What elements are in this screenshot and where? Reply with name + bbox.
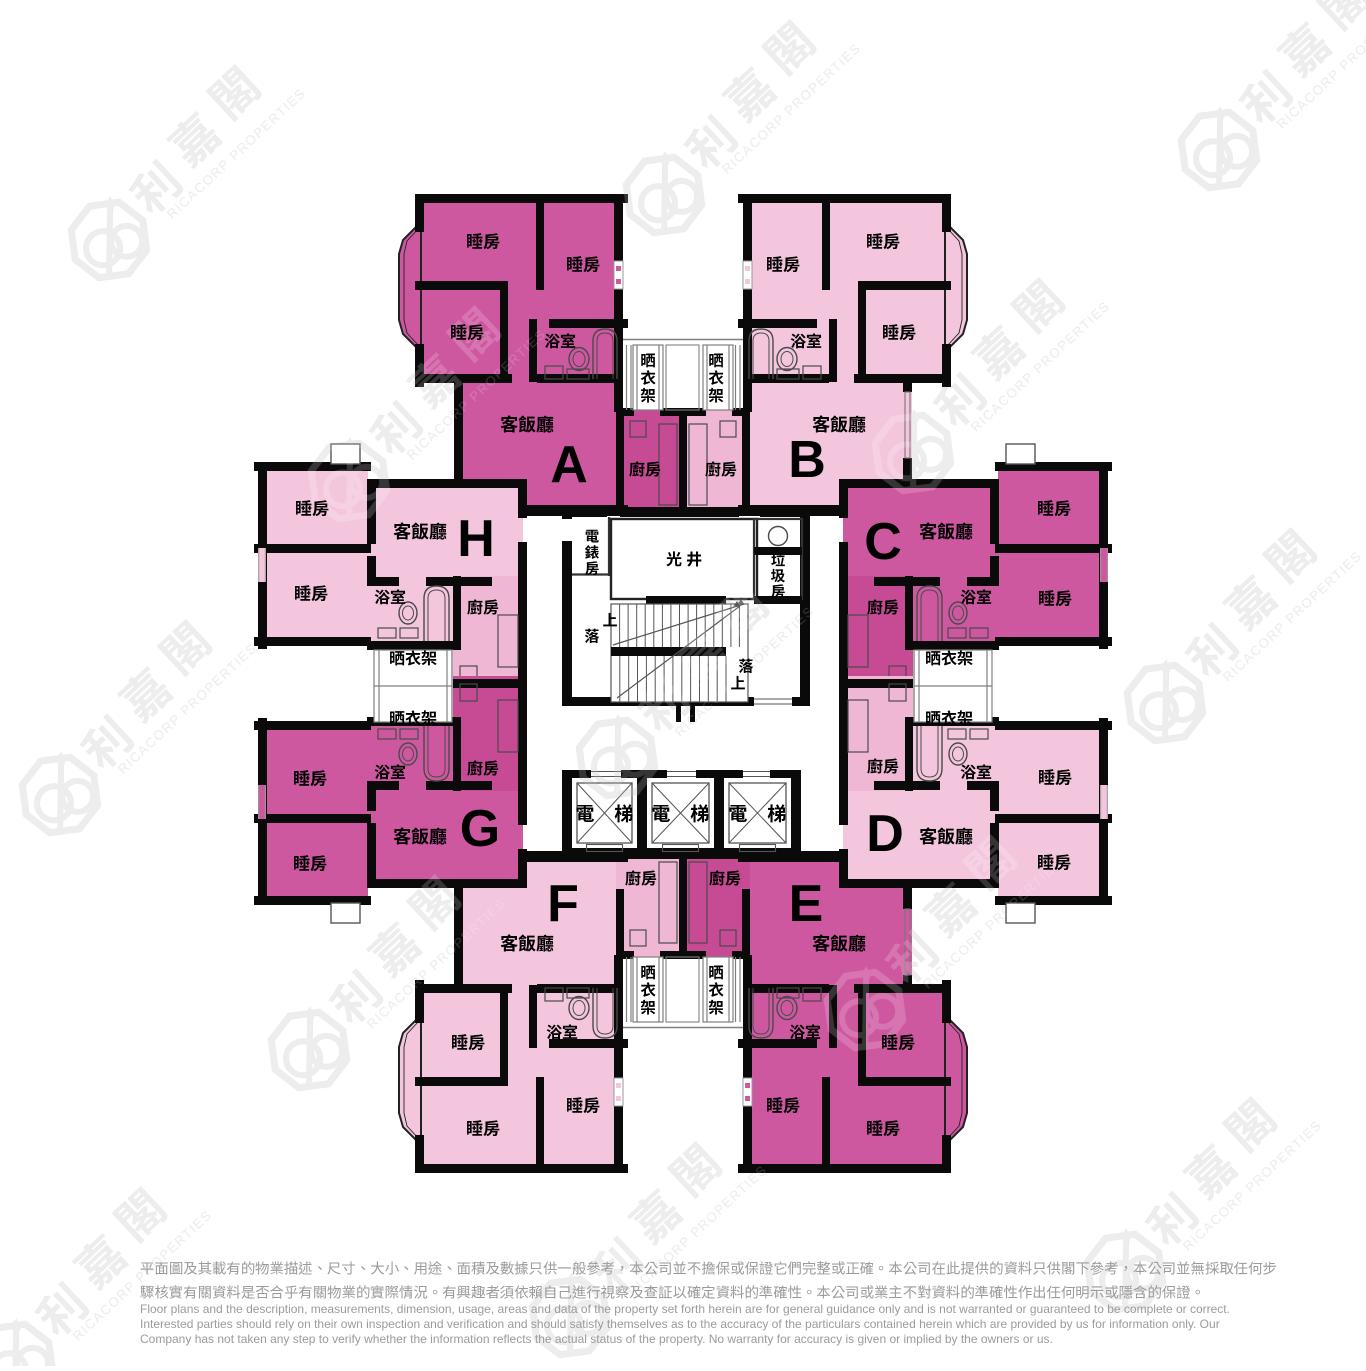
svg-text:晒衣架: 晒衣架 — [925, 705, 973, 729]
svg-text:睡房: 睡房 — [882, 319, 916, 344]
svg-text:梯: 梯 — [767, 800, 786, 827]
svg-text:梯: 梯 — [690, 800, 709, 827]
svg-text:睡房: 睡房 — [1037, 495, 1071, 520]
svg-text:浴室: 浴室 — [546, 1019, 578, 1043]
svg-text:客飯廳: 客飯廳 — [393, 518, 447, 544]
svg-text:睡房: 睡房 — [1037, 849, 1071, 874]
svg-text:浴室: 浴室 — [960, 759, 992, 783]
svg-text:廚房: 廚房 — [467, 594, 499, 618]
svg-text:Floor plans and the descriptio: Floor plans and the description, measure… — [140, 1302, 1230, 1316]
svg-text:廚房: 廚房 — [867, 594, 899, 618]
svg-text:浴室: 浴室 — [790, 328, 822, 352]
svg-text:廚房: 廚房 — [629, 456, 661, 480]
svg-text:G: G — [460, 800, 500, 858]
svg-text:廚房: 廚房 — [705, 456, 737, 480]
svg-text:睡房: 睡房 — [881, 1029, 915, 1054]
svg-text:H: H — [457, 510, 495, 568]
svg-text:睡房: 睡房 — [466, 1115, 500, 1140]
svg-text:電: 電 — [728, 800, 747, 827]
svg-text:睡房: 睡房 — [566, 1092, 600, 1117]
svg-text:睡房: 睡房 — [866, 1115, 900, 1140]
svg-text:睡房: 睡房 — [293, 850, 327, 875]
svg-text:上: 上 — [602, 610, 617, 631]
svg-text:D: D — [866, 805, 904, 863]
svg-text:Interested parties should rely: Interested parties should rely on their … — [140, 1317, 1220, 1331]
svg-text:睡房: 睡房 — [766, 1092, 800, 1117]
svg-text:落: 落 — [584, 626, 599, 647]
svg-text:浴室: 浴室 — [374, 584, 406, 608]
svg-text:客飯廳: 客飯廳 — [812, 930, 866, 956]
svg-text:睡房: 睡房 — [1038, 585, 1072, 610]
svg-text:C: C — [864, 513, 902, 571]
svg-text:客飯廳: 客飯廳 — [812, 411, 866, 437]
svg-text:客飯廳: 客飯廳 — [393, 823, 447, 849]
svg-text:客飯廳: 客飯廳 — [919, 823, 973, 849]
svg-text:房: 房 — [585, 558, 600, 579]
svg-text:晒衣架: 晒衣架 — [389, 705, 437, 729]
svg-text:睡房: 睡房 — [566, 251, 600, 276]
svg-text:架: 架 — [640, 384, 656, 406]
svg-text:浴室: 浴室 — [960, 584, 992, 608]
svg-text:晒衣架: 晒衣架 — [389, 645, 437, 669]
svg-text:上: 上 — [730, 673, 745, 694]
svg-text:E: E — [789, 875, 824, 933]
svg-text:睡房: 睡房 — [866, 228, 900, 253]
svg-text:電: 電 — [651, 800, 670, 827]
svg-text:梯: 梯 — [614, 800, 633, 827]
svg-text:A: A — [550, 436, 588, 494]
svg-text:光 井: 光 井 — [666, 546, 702, 570]
svg-text:架: 架 — [708, 384, 724, 406]
svg-text:平面圖及其載有的物業描述、尺寸、大小、用途、面積及數據只供一: 平面圖及其載有的物業描述、尺寸、大小、用途、面積及數據只供一般參考，本公司並不擔… — [140, 1258, 1277, 1279]
svg-text:睡房: 睡房 — [1038, 764, 1072, 789]
svg-text:浴室: 浴室 — [789, 1019, 821, 1043]
svg-text:Company has not taken any step: Company has not taken any step to verify… — [140, 1332, 1053, 1346]
svg-text:廚房: 廚房 — [867, 753, 899, 777]
svg-text:架: 架 — [640, 996, 656, 1018]
svg-text:睡房: 睡房 — [294, 580, 328, 605]
svg-text:睡房: 睡房 — [451, 1029, 485, 1054]
svg-text:浴室: 浴室 — [544, 328, 576, 352]
svg-text:B: B — [788, 431, 826, 489]
svg-text:電: 電 — [575, 800, 594, 827]
svg-text:睡房: 睡房 — [293, 765, 327, 790]
svg-text:客飯廳: 客飯廳 — [500, 930, 554, 956]
svg-text:晒衣架: 晒衣架 — [925, 645, 973, 669]
svg-text:睡房: 睡房 — [766, 251, 800, 276]
svg-text:客飯廳: 客飯廳 — [500, 411, 554, 437]
svg-text:架: 架 — [708, 996, 724, 1018]
svg-text:客飯廳: 客飯廳 — [919, 518, 973, 544]
svg-text:F: F — [547, 875, 579, 933]
svg-text:浴室: 浴室 — [374, 759, 406, 783]
svg-text:房: 房 — [771, 581, 786, 602]
svg-text:睡房: 睡房 — [295, 495, 329, 520]
svg-text:廚房: 廚房 — [467, 755, 499, 779]
svg-text:廚房: 廚房 — [709, 865, 741, 889]
svg-text:廚房: 廚房 — [625, 865, 657, 889]
svg-text:睡房: 睡房 — [450, 319, 484, 344]
svg-text:驟核實有關資料是否合乎有關物業的實際情況。有興趣者須依賴自己: 驟核實有關資料是否合乎有關物業的實際情況。有興趣者須依賴自己進行視察及查証以確定… — [140, 1282, 1205, 1303]
svg-text:睡房: 睡房 — [466, 228, 500, 253]
